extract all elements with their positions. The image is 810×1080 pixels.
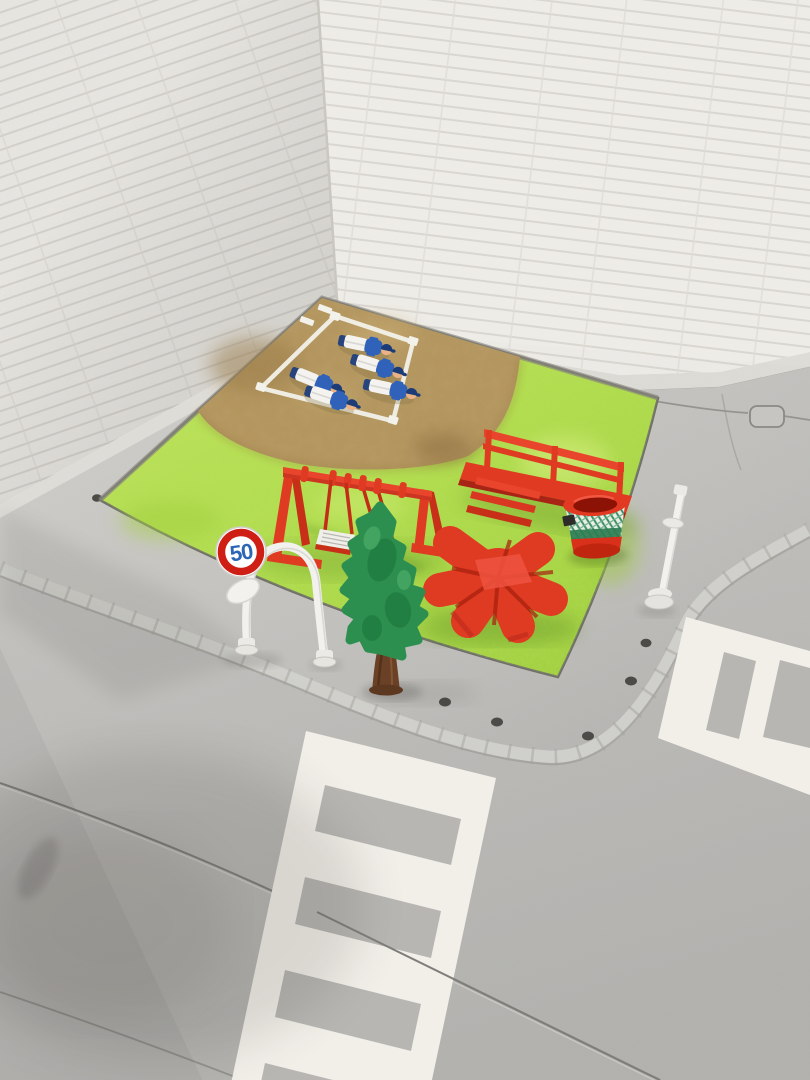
speed-limit-text: 50 [228,538,254,566]
diorama-photo: 50 [0,0,810,1080]
photo-scene: 50 [0,0,810,1080]
puzzle-tab-connector [750,406,784,427]
arch-foot-left [235,638,258,655]
arch-foot-right [313,650,336,667]
trash-barrel [561,490,630,567]
